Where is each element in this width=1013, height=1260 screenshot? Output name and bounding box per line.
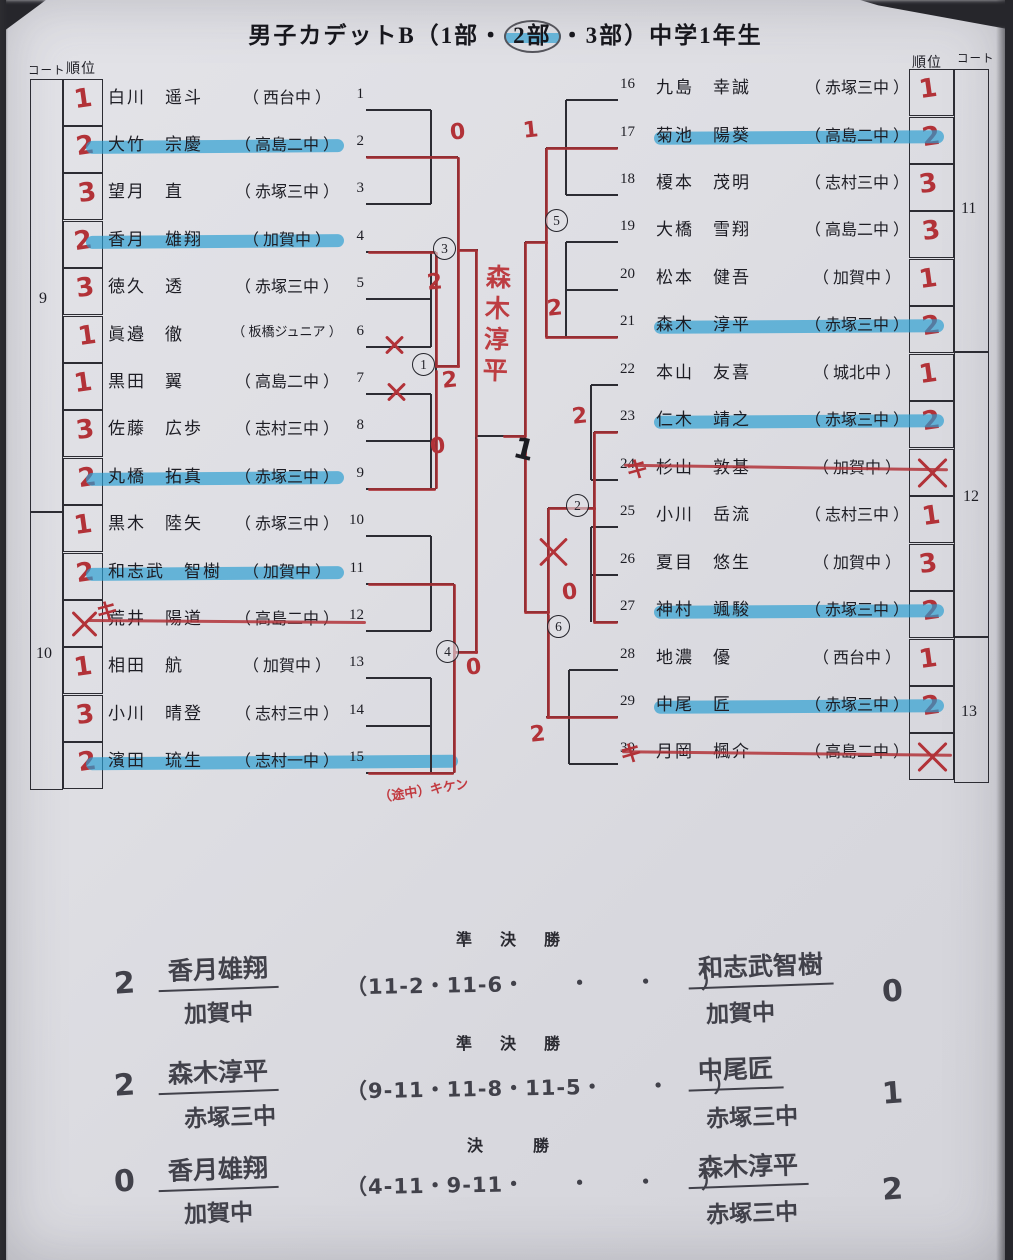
court-number: 12 [963,488,979,506]
player-school: （ 高島二中 ） [224,368,350,392]
player-school: （ 赤塚三中 ） [224,463,350,487]
score-note: 0 [449,119,467,145]
player-number: 8 [340,417,364,434]
player-number: 23 [620,408,646,425]
winner-trace [457,250,460,368]
bracket-line [366,298,431,300]
bracket-line [566,241,618,243]
player-number: 22 [620,361,646,378]
court-number: 11 [961,200,976,218]
result-score-left: 2 [113,965,136,1001]
score-note: 2 [529,721,547,747]
player-name: 神村 颯駿 [656,595,751,620]
player-school: （ 城北中 ） [794,359,920,383]
player-name: 和志武 智樹 [108,557,222,582]
bracket-line [366,725,431,727]
winner-trace [368,772,454,775]
result-score-right: 2 [881,1171,904,1207]
player-school: （ 志村一中 ） [224,747,350,771]
player-name: 香月 雄翔 [108,225,203,250]
player-number: 27 [620,598,646,615]
bracket-x-mark [381,333,405,357]
result-score-left: 0 [113,1163,136,1199]
player-name: 榎本 茂明 [656,168,751,193]
player-school: （ 加賀中 ） [224,652,350,676]
bracket-line [590,527,592,622]
winner-trace [475,438,478,654]
winner-trace [525,611,550,614]
winner-trace [368,488,436,491]
player-school: （ 板橋ジュニア ） [224,321,350,340]
bracket-line [590,385,592,480]
player-school: （ 高島二中 ） [794,122,920,146]
winner-trace [368,251,436,254]
champion-name: 森木淳平 [473,263,515,439]
left-rank-header: 順位 [66,58,96,78]
player-school: （ 高島二中 ） [224,605,350,629]
player-school: （ 志村三中 ） [224,700,350,724]
score-note: キ [618,735,643,769]
bracket-line [566,99,618,101]
player-number: 26 [620,551,646,568]
winner-trace [457,157,460,252]
court-number: 9 [39,290,47,308]
result-score-right: 0 [881,973,904,1009]
player-name: 大竹 宗慶 [108,130,203,155]
player-number: 17 [620,124,646,141]
result-heading: 準 決 勝 [361,926,661,950]
player-name: 望月 直 [108,177,184,202]
player-name: 眞邉 徹 [108,320,184,345]
player-school: （ 赤塚三中 ） [794,406,920,430]
player-name: 中尾 匠 [656,690,732,715]
bracket-line [566,194,618,196]
result-school-left: 加賀中 [183,1193,253,1229]
winner-trace [545,148,548,244]
score-note: 2 [571,403,589,429]
player-name: 松本 健吾 [656,263,751,288]
retire-note: （途中）キケン [377,773,469,806]
player-number: 21 [620,313,646,330]
player-school: （ 高島二中 ） [794,216,920,240]
player-name: 徳久 透 [108,272,184,297]
right-court-header: コート [957,50,995,66]
page-title: 男子カデットB（1部・2部・3部）中学1年生 [6,16,1005,50]
bracket-line [569,669,618,671]
player-number: 15 [340,749,364,766]
court-number: 10 [36,645,52,663]
winner-trace [546,336,618,339]
title-division-circled: 2部 [504,20,561,53]
player-school: （ 高島二中 ） [224,131,350,155]
player-name: 濱田 琉生 [108,746,203,771]
player-name: 黒田 翼 [108,367,184,392]
winner-trace [593,508,596,624]
player-number: 1 [340,86,364,103]
tournament-sheet-photo: 男子カデットB（1部・2部・3部）中学1年生 コート 順位 順位 コート 910… [0,0,1013,1260]
score-note: 1 [522,117,540,143]
bracket-x-mark [533,533,571,571]
result-school-left: 赤塚三中 [183,1096,276,1133]
winner-trace [546,716,618,719]
player-school: （ 赤塚三中 ） [224,178,350,202]
player-number: 18 [620,171,646,188]
player-name: 小川 晴登 [108,699,203,724]
court-number: 13 [961,703,977,721]
winner-trace [453,652,456,773]
player-school: （ 加賀中 ） [224,558,350,582]
title-prefix: 男子カデットB（1部・ [248,23,504,48]
player-school: （ 赤塚三中 ） [794,596,920,620]
player-school: （ 加賀中 ） [794,264,920,288]
bracket-line [366,109,431,111]
player-school: （ 志村三中 ） [794,169,920,193]
winner-trace [594,621,618,624]
player-school: （ 赤塚三中 ） [224,510,350,534]
bracket-line [565,242,567,337]
player-number: 2 [340,133,364,150]
score-note: キ [624,451,649,485]
result-player-left: 香月雄翔 [157,948,278,992]
winner-trace [593,432,596,510]
bracket-line [366,630,431,632]
player-name: 菊池 陽葵 [656,121,751,146]
player-school: （ 志村三中 ） [794,501,920,525]
bracket-x-mark [383,380,407,404]
left-court-header: コート [28,62,66,78]
result-player-right: 中尾匠 [687,1048,783,1091]
player-school: （ 志村三中 ） [224,415,350,439]
paper-sheet: 男子カデットB（1部・2部・3部）中学1年生 コート 順位 順位 コート 910… [6,0,1005,1260]
player-number: 6 [340,323,364,340]
bracket-line [566,289,618,291]
score-note: 2 [546,295,564,321]
player-school: （ 西台中 ） [224,84,350,108]
winner-trace [366,156,458,159]
winner-trace [594,431,618,434]
player-name: 仁木 靖之 [656,405,751,430]
bracket-line [366,677,431,679]
player-name: 丸橋 拓真 [108,462,203,487]
result-player-right: 和志武智樹 [687,944,833,989]
player-name: 月岡 楓介 [656,737,751,762]
result-games: （9-11・11-8・11-5・ ・ ） [346,1069,736,1106]
result-games: （4-11・9-11・ ・ ・ ） [346,1165,724,1202]
player-number: 16 [620,76,646,93]
player-number: 13 [340,654,364,671]
player-school: （ 赤塚三中 ） [794,74,920,98]
score-note: 0 [561,579,579,605]
player-name: 白川 遥斗 [108,83,203,108]
player-school: （ 高島二中 ） [794,738,920,762]
winner-trace [435,370,438,489]
winner-trace [524,242,527,438]
bracket-line [366,535,431,537]
player-number: 4 [340,228,364,245]
result-school-right: 赤塚三中 [705,1096,798,1133]
rank-withdraw-x [66,607,100,641]
result-score-left: 2 [113,1067,136,1103]
player-number: 28 [620,646,646,663]
result-player-right: 森木淳平 [687,1145,808,1189]
player-name: 大橋 雪翔 [656,215,751,240]
score-note: 2 [426,269,444,295]
bracket-line [430,252,432,347]
match-number-circle: 4 [436,640,459,663]
match-number-circle: 3 [433,237,456,260]
player-number: 11 [340,560,364,577]
score-note: 2 [441,367,459,393]
winner-trace [368,583,454,586]
score-note: 0 [465,654,483,680]
winner-trace [525,241,548,244]
player-school: （ 加賀中 ） [224,226,350,250]
score-note: 0 [429,433,447,459]
result-player-left: 森木淳平 [157,1051,278,1095]
result-games: （11-2・11-6・ ・ ・ ） [346,965,724,1002]
bracket-line [366,203,431,205]
player-name: 本山 友喜 [656,358,751,383]
player-number: 29 [620,693,646,710]
player-name: 夏目 悠生 [656,548,751,573]
player-number: 14 [340,702,364,719]
result-school-right: 赤塚三中 [705,1192,798,1229]
player-name: 森木 淳平 [656,310,751,335]
match-number-circle: 5 [545,209,568,232]
result-school-right: 加賀中 [705,993,775,1029]
result-player-left: 香月雄翔 [157,1148,278,1192]
player-number: 5 [340,275,364,292]
player-name: 小川 岳流 [656,500,751,525]
player-name: 地濃 優 [656,643,732,668]
player-school: （ 西台中 ） [794,644,920,668]
score-note: キ [94,593,119,627]
player-number: 9 [340,465,364,482]
match-number-circle: 6 [547,615,570,638]
match-number-circle: 1 [412,353,435,376]
result-heading: 決 勝 [361,1132,661,1156]
result-heading: 準 決 勝 [361,1030,661,1054]
bracket-line [430,678,432,773]
player-name: 相田 航 [108,651,184,676]
player-number: 7 [340,370,364,387]
title-suffix: ・3部）中学1年生 [561,23,763,48]
player-school: （ 加賀中 ） [794,549,920,573]
player-number: 19 [620,218,646,235]
player-number: 10 [340,512,364,529]
player-number: 20 [620,266,646,283]
player-school: （ 赤塚三中 ） [794,311,920,335]
player-name: 佐藤 広歩 [108,414,203,439]
player-school: （ 赤塚三中 ） [224,273,350,297]
bracket-line [366,440,431,442]
player-name: 九島 幸誠 [656,73,751,98]
match-number-circle: 2 [566,494,589,517]
winner-trace [545,242,548,339]
bracket-line [591,384,618,386]
result-score-right: 1 [881,1075,904,1111]
player-number: 25 [620,503,646,520]
bracket-line [569,763,618,765]
player-number: 3 [340,180,364,197]
player-name: 黒木 陸矢 [108,509,203,534]
player-school: （ 赤塚三中 ） [794,691,920,715]
result-school-left: 加賀中 [183,993,253,1029]
player-name: 荒井 陽道 [108,604,203,629]
winner-trace [546,147,618,150]
